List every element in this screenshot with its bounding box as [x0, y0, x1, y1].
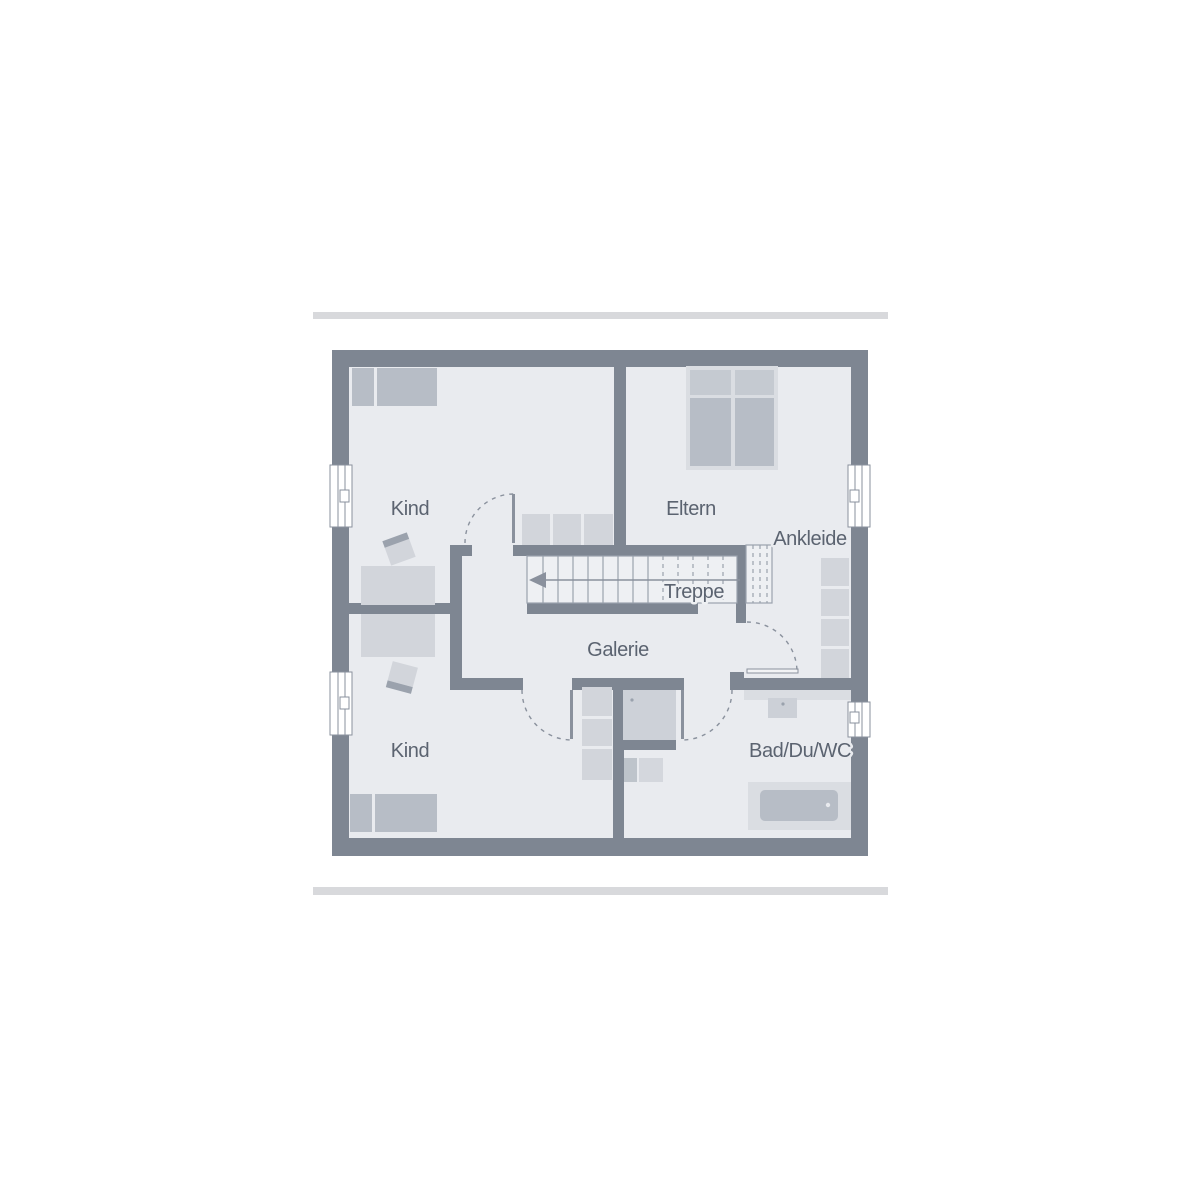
window-bad [848, 702, 870, 737]
door-kind-top-leaf [512, 494, 515, 543]
bed-eltern [686, 366, 778, 470]
bottom-divider-bar [313, 887, 888, 895]
wall-shower-bottom [623, 740, 676, 750]
floorplan-drawing: Kind Eltern Ankleide Treppe Galerie Kind… [0, 0, 1200, 1200]
door-bad-leaf [681, 690, 684, 739]
window-kind-bottom [330, 672, 352, 735]
room-label-bad: Bad/Du/WC [749, 740, 851, 762]
window-kind-top [330, 465, 352, 527]
room-label-eltern: Eltern [666, 498, 716, 520]
wall-stairs-top [513, 545, 746, 556]
wall-galerie-left [450, 545, 462, 690]
floorplan-page: Kind Eltern Ankleide Treppe Galerie Kind… [0, 0, 1200, 1200]
window-eltern [848, 465, 870, 527]
room-label-treppe: Treppe [664, 581, 725, 603]
wall-bad-stub [730, 672, 744, 678]
top-divider-bar [313, 312, 888, 319]
wall-kind-bottom-top [450, 678, 523, 690]
room-label-galerie: Galerie [587, 639, 649, 661]
bathtub [748, 782, 851, 830]
stairwell-upper-section [746, 545, 772, 603]
wall-stairs-bottom [527, 603, 698, 614]
toilet [624, 758, 663, 782]
bed-kind-bottom [350, 794, 437, 832]
shelf [522, 514, 613, 545]
desk-kind-top [361, 566, 435, 605]
door-kind-bottom-leaf [570, 690, 573, 739]
room-label-kind-bottom: Kind [391, 740, 429, 762]
door-ankleide-leaf [747, 669, 798, 673]
wall-eltern-left [614, 367, 626, 547]
cabinet-kind-bottom [582, 687, 612, 780]
room-label-kind-top: Kind [391, 498, 429, 520]
wall-bad-top [730, 678, 851, 690]
bed-kind-top [352, 368, 437, 406]
desk-kind-bottom [361, 614, 435, 657]
wall-middle-vertical [613, 680, 624, 838]
shower [623, 690, 676, 740]
room-label-ankleide: Ankleide [773, 528, 847, 550]
wall-door-jamb-stub [450, 545, 472, 556]
